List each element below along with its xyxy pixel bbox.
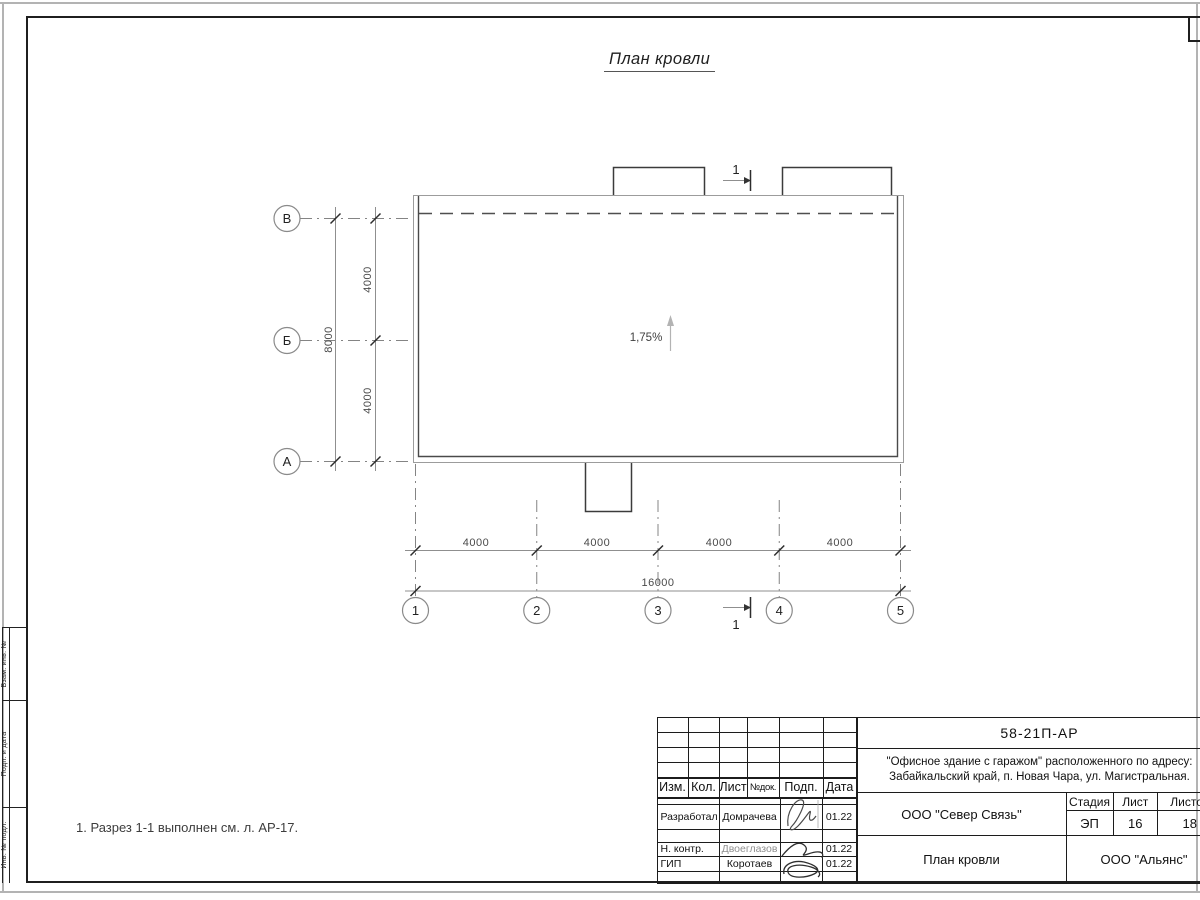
stage-label-cell: Стадия xyxy=(1066,792,1114,811)
revision-table xyxy=(657,717,858,779)
dim-label: 4000 xyxy=(362,387,374,413)
signer-name: Коротаев xyxy=(720,857,781,872)
rooftop-structure-left xyxy=(614,168,705,196)
empty-cell xyxy=(720,798,781,805)
revision-cell xyxy=(780,718,824,733)
sheets-label-cell: Листов xyxy=(1157,792,1200,811)
titleblock-header-row: Изм. Кол. Лист №док. Подп. Дата xyxy=(657,777,858,799)
entrance-canopy-bottom xyxy=(586,463,632,512)
contractor-cell: ООО "Север Связь" xyxy=(857,792,1067,836)
sheets-total-cell: 18 xyxy=(1157,810,1200,836)
revision-cell xyxy=(658,733,689,748)
axis-label: В xyxy=(283,211,292,226)
column-header: Дата xyxy=(824,778,857,798)
revision-cell xyxy=(720,748,748,763)
doc-number-cell: 58-21П-АР xyxy=(857,717,1200,749)
slope-label: 1,75% xyxy=(630,332,663,344)
revision-cell xyxy=(689,718,720,733)
revision-cell xyxy=(780,733,824,748)
section-mark-bottom xyxy=(723,597,751,618)
dim-label: 8000 xyxy=(323,326,335,352)
dim-label: 4000 xyxy=(362,266,374,292)
section-label: 1 xyxy=(732,162,739,177)
revision-cell xyxy=(748,733,780,748)
signer-role: Разработал xyxy=(658,805,720,830)
revision-cell xyxy=(689,733,720,748)
empty-cell xyxy=(823,798,857,805)
revision-cell xyxy=(720,733,748,748)
signer-name: Домрачева xyxy=(720,805,781,830)
column-header: №док. xyxy=(748,778,780,798)
drawing-sheet: { "sheet": { "title": "План кровли", "no… xyxy=(0,0,1200,900)
signer-name: Двоеглазов xyxy=(720,843,781,857)
column-header: Лист xyxy=(720,778,748,798)
empty-cell xyxy=(658,872,720,883)
revision-cell xyxy=(658,718,689,733)
signer-role: ГИП xyxy=(658,857,720,872)
row-axis-lines xyxy=(300,219,412,462)
revision-cell xyxy=(780,748,824,763)
axis-label: 2 xyxy=(533,603,540,618)
rooftop-structure-right xyxy=(783,168,892,196)
axis-label: 3 xyxy=(654,603,661,618)
revision-cell xyxy=(658,748,689,763)
revision-cell xyxy=(748,763,780,778)
column-header: Изм. xyxy=(658,778,689,798)
signature-korotaev xyxy=(778,838,828,880)
revision-cell xyxy=(689,748,720,763)
revision-cell xyxy=(748,748,780,763)
axis-label: Б xyxy=(283,333,292,348)
empty-cell xyxy=(658,798,720,805)
project-description-cell: "Офисное здание с гаражом" расположенног… xyxy=(857,748,1200,794)
dim-label: 16000 xyxy=(641,577,674,589)
project-address-line1: "Офисное здание с гаражом" расположенног… xyxy=(887,755,1193,771)
sheet-label-cell: Лист xyxy=(1113,792,1159,811)
dim-label: 4000 xyxy=(827,537,853,549)
revision-cell xyxy=(748,718,780,733)
sheet-number-cell: 16 xyxy=(1113,810,1159,836)
axis-label: 4 xyxy=(776,603,783,618)
section-label: 1 xyxy=(732,617,739,632)
signer-date: 01.22 xyxy=(823,805,857,830)
dim-label: 4000 xyxy=(463,537,489,549)
revision-cell xyxy=(720,718,748,733)
dim-label: 4000 xyxy=(584,537,610,549)
drawing-name-cell: План кровли xyxy=(857,835,1067,884)
revision-cell xyxy=(824,763,857,778)
axis-label: А xyxy=(283,454,292,469)
column-header: Кол. xyxy=(689,778,720,798)
dim-label: 4000 xyxy=(706,537,732,549)
revision-cell xyxy=(824,718,857,733)
revision-cell xyxy=(780,763,824,778)
revision-cell xyxy=(689,763,720,778)
side-stamp-label: Инв. № подл. xyxy=(0,790,10,900)
revision-cell xyxy=(658,763,689,778)
stage-value-cell: ЭП xyxy=(1066,810,1114,836)
company-cell: ООО "Альянс" xyxy=(1066,835,1200,884)
slope-arrow-icon xyxy=(667,315,674,351)
revision-cell xyxy=(824,733,857,748)
vertical-dimension-lines xyxy=(336,207,376,471)
roof-outline xyxy=(414,196,904,463)
axis-label: 1 xyxy=(412,603,419,618)
project-address-line2: Забайкальский край, п. Новая Чара, ул. М… xyxy=(889,770,1190,786)
axis-label: 5 xyxy=(897,603,904,618)
signer-role: Н. контр. xyxy=(658,843,720,857)
roof-parapet-lines xyxy=(419,196,898,457)
revision-cell xyxy=(720,763,748,778)
empty-cell xyxy=(658,830,720,843)
empty-cell xyxy=(720,872,781,883)
revision-cell xyxy=(824,748,857,763)
signature-domracheva xyxy=(782,792,824,836)
empty-cell xyxy=(720,830,781,843)
